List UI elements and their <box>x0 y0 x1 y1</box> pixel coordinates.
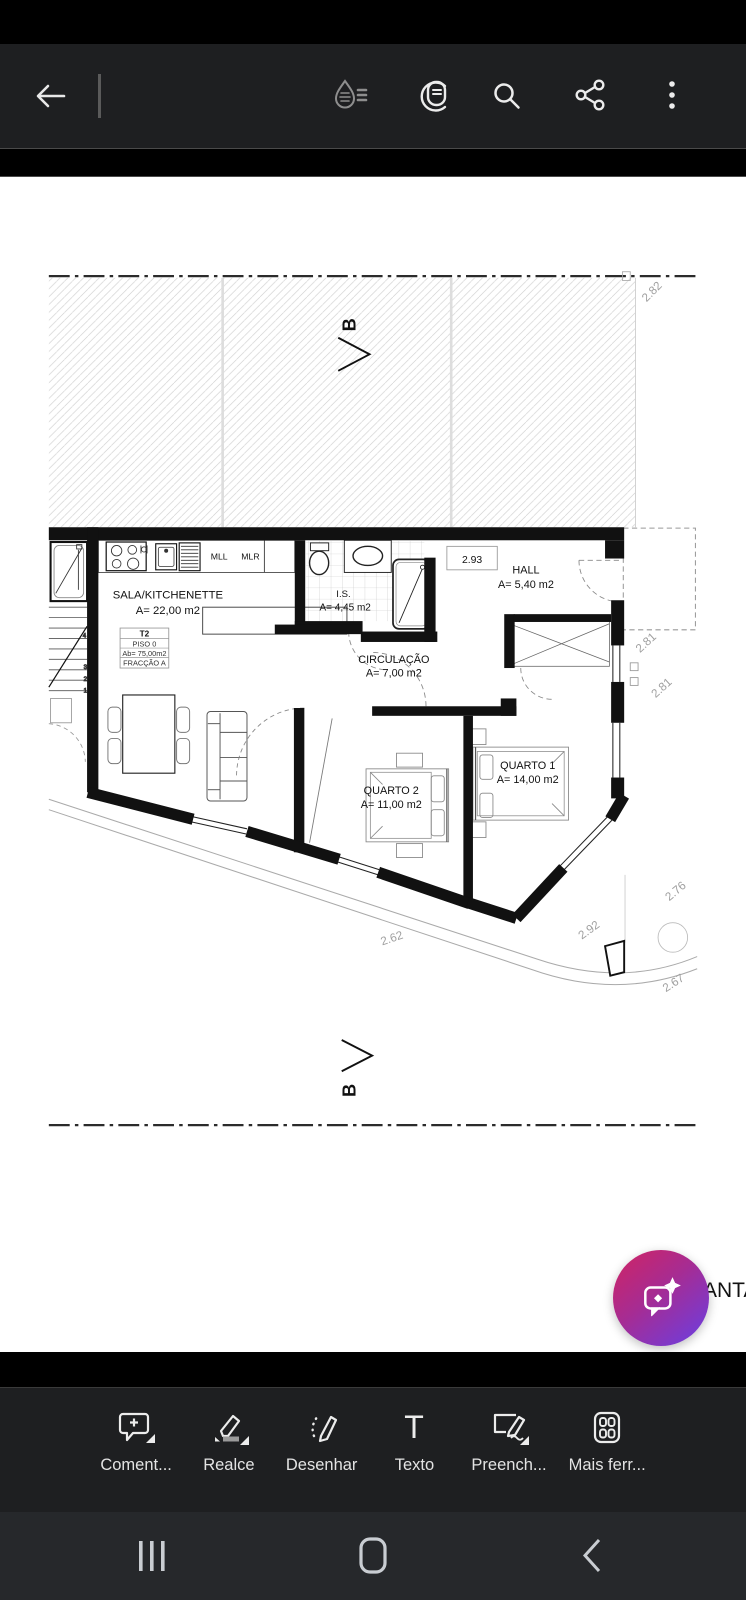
svg-text:MLL: MLL <box>211 551 228 561</box>
svg-text:2: 2 <box>84 676 88 683</box>
site-lines <box>49 272 697 1125</box>
tools-toolbar: Coment... Realce Desenhar T Texto Preenc… <box>0 1387 746 1512</box>
svg-text:T2: T2 <box>140 630 150 639</box>
section-marker-bottom: B <box>339 1040 373 1097</box>
comment-add-icon <box>113 1405 159 1451</box>
fill-sign-icon <box>486 1405 532 1451</box>
svg-text:A= 5,40 m2: A= 5,40 m2 <box>498 579 554 591</box>
svg-text:2.76: 2.76 <box>663 879 689 904</box>
home-button[interactable] <box>351 1534 395 1578</box>
svg-text:A= 11,00 m2: A= 11,00 m2 <box>361 799 422 811</box>
svg-text:2.67: 2.67 <box>660 972 686 995</box>
share-icon[interactable] <box>568 74 612 118</box>
tool-draw[interactable]: Desenhar <box>286 1405 358 1475</box>
ai-assistant-fab[interactable] <box>613 1250 709 1346</box>
tool-fill-sign-label: Preench... <box>471 1456 546 1475</box>
text-tool-icon: T <box>391 1405 437 1451</box>
status-bar <box>0 0 746 44</box>
tool-fill-sign[interactable]: Preench... <box>471 1405 546 1475</box>
overflow-menu-icon[interactable] <box>650 74 694 118</box>
svg-text:2.93: 2.93 <box>462 555 482 566</box>
stairwell: 4 3 2 1 <box>49 542 88 762</box>
tool-highlight-label: Realce <box>203 1456 254 1475</box>
svg-text:Ab= 75,00m2: Ab= 75,00m2 <box>122 649 166 658</box>
back-arrow-icon[interactable] <box>28 74 72 118</box>
highlighter-icon <box>206 1405 252 1451</box>
draw-pencil-icon <box>299 1405 345 1451</box>
room-labels: SALA/KITCHENETTE A= 22,00 m2 MLL MLR I.S… <box>113 551 559 811</box>
ai-chat-sparkle-icon <box>638 1275 684 1321</box>
svg-text:2.81: 2.81 <box>649 676 675 701</box>
clipped-plan-title: ANTA <box>703 1279 746 1303</box>
svg-text:2.62: 2.62 <box>379 929 405 949</box>
svg-text:A= 22,00 m2: A= 22,00 m2 <box>136 605 200 617</box>
tool-draw-label: Desenhar <box>286 1456 358 1475</box>
tool-more-tools[interactable]: Mais ferr... <box>569 1405 646 1475</box>
hatched-building-mass <box>49 278 636 527</box>
letterbox-top <box>0 149 746 177</box>
sofa <box>207 711 247 801</box>
tool-comment-label: Coment... <box>100 1456 172 1475</box>
svg-text:PISO 0: PISO 0 <box>133 639 157 648</box>
svg-text:CIRCULAÇÃO: CIRCULAÇÃO <box>358 653 429 666</box>
svg-text:2.92: 2.92 <box>576 918 602 942</box>
svg-text:A= 4,45 m2: A= 4,45 m2 <box>320 603 372 614</box>
svg-text:B: B <box>339 318 360 331</box>
view-settings-icon[interactable] <box>411 74 455 118</box>
hall-wardrobe <box>514 621 610 666</box>
tool-text[interactable]: T Texto <box>379 1405 449 1475</box>
svg-text:2.81: 2.81 <box>633 630 659 655</box>
svg-text:QUARTO 2: QUARTO 2 <box>364 785 419 797</box>
unit-info-box: T2 PISO 0 Ab= 75,00m2 FRACÇÃO A <box>120 628 169 668</box>
svg-text:QUARTO 1: QUARTO 1 <box>500 760 555 772</box>
toolbar-title-divider <box>98 74 101 118</box>
search-icon[interactable] <box>485 74 529 118</box>
svg-text:SALA/KITCHENETTE: SALA/KITCHENETTE <box>113 590 224 602</box>
svg-text:T: T <box>405 1409 425 1445</box>
recents-button[interactable] <box>130 1534 174 1578</box>
svg-text:A= 14,00 m2: A= 14,00 m2 <box>497 774 559 786</box>
tool-comment[interactable]: Coment... <box>100 1405 172 1475</box>
android-nav-bar <box>0 1512 746 1600</box>
svg-text:A= 7,00 m2: A= 7,00 m2 <box>366 668 422 680</box>
tool-text-label: Texto <box>395 1456 434 1475</box>
tool-highlight[interactable]: Realce <box>194 1405 264 1475</box>
svg-text:FRACÇÃO A: FRACÇÃO A <box>123 658 166 667</box>
tool-more-tools-label: Mais ferr... <box>569 1456 646 1475</box>
svg-text:2.82: 2.82 <box>639 279 664 304</box>
svg-text:I.S.: I.S. <box>336 589 350 600</box>
more-tools-icon <box>584 1405 630 1451</box>
floor-plan: 4 3 2 1 <box>0 177 746 1352</box>
svg-text:B: B <box>339 1084 360 1097</box>
svg-text:HALL: HALL <box>512 564 539 576</box>
back-button[interactable] <box>572 1534 616 1578</box>
app-toolbar <box>0 44 746 149</box>
liquid-mode-icon[interactable] <box>328 74 372 118</box>
svg-text:MLR: MLR <box>241 551 259 561</box>
letterbox-bottom <box>0 1352 746 1387</box>
door-leaf <box>310 718 333 842</box>
document-page[interactable]: 4 3 2 1 <box>0 177 746 1352</box>
dim-2-93-box: 2.93 <box>447 546 497 569</box>
